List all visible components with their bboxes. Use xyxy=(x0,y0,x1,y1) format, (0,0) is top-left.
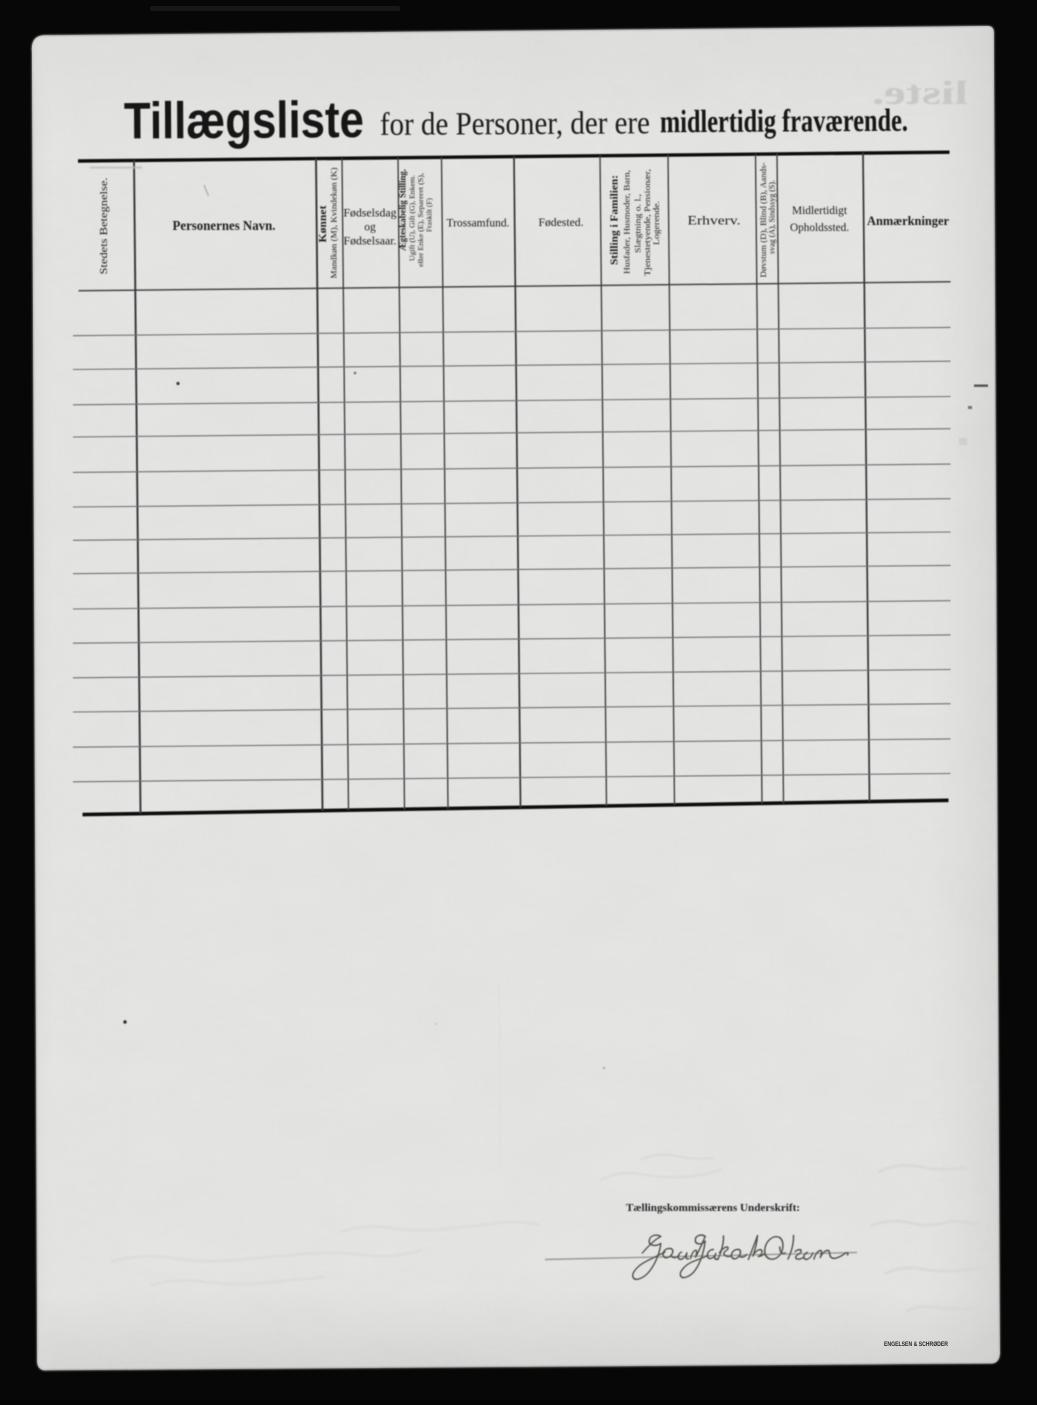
svg-text:Mandkøn (M), Kvindekøn (K): Mandkøn (M), Kvindekøn (K) xyxy=(329,167,339,278)
svg-text:Husfader, Husmoder, Barn,: Husfader, Husmoder, Barn, xyxy=(622,170,632,274)
svg-text:Fødselsdag: Fødselsdag xyxy=(344,208,397,220)
svg-text:Midlertidigt: Midlertidigt xyxy=(792,205,848,217)
svg-text:Stedets Betegnelse.: Stedets Betegnelse. xyxy=(99,178,110,275)
svg-text:Erhverv.: Erhverv. xyxy=(688,214,741,228)
svg-text:Personernes Navn.: Personernes Navn. xyxy=(173,218,276,233)
svg-text:ENGELSEN & SCHRØDER: ENGELSEN & SCHRØDER xyxy=(884,1342,949,1348)
svg-text:Opholdssted.: Opholdssted. xyxy=(790,222,849,234)
svg-text:Fraskilt (F): Fraskilt (F) xyxy=(425,198,434,232)
svg-text:for de Personer, der ere: for de Personer, der ere xyxy=(380,105,650,143)
svg-text:Tillægsliste: Tillægsliste xyxy=(124,90,364,149)
svg-text:Fødested.: Fødested. xyxy=(539,217,584,229)
svg-text:Stilling i Familien:: Stilling i Familien: xyxy=(610,175,621,265)
svg-text:Døvstum (D), Blind (B), Aands-: Døvstum (D), Blind (B), Aands- xyxy=(758,162,768,277)
svg-text:Anmærkninger: Anmærkninger xyxy=(867,213,949,228)
svg-text:Logerende.: Logerende. xyxy=(651,201,661,245)
svg-text:Tællingskommissærens Underskri: Tællingskommissærens Underskrift: xyxy=(626,1203,800,1214)
svg-text:svag (A), Sindssyg (S).: svag (A), Sindssyg (S). xyxy=(768,180,777,254)
svg-text:Fødselsaar.: Fødselsaar. xyxy=(344,236,397,248)
svg-text:midlertidig fraværende.: midlertidig fraværende. xyxy=(660,102,908,140)
svg-text:Kønnet: Kønnet xyxy=(317,205,329,242)
svg-text:og: og xyxy=(364,222,376,234)
svg-text:Trossamfund.: Trossamfund. xyxy=(447,218,510,230)
